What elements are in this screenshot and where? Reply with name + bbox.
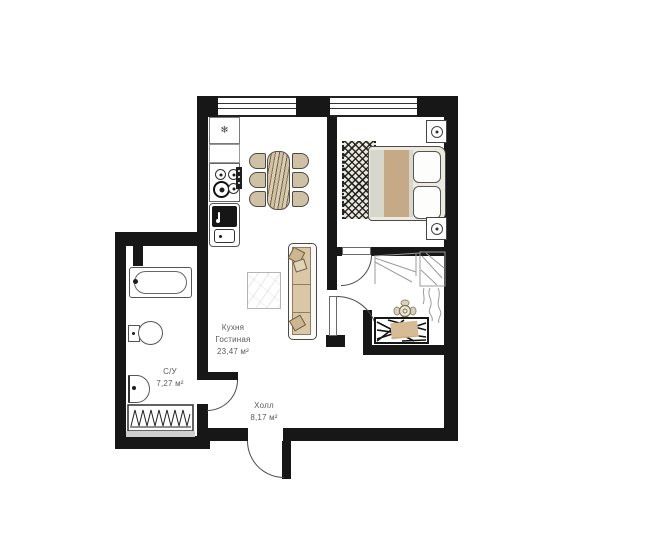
room-name: С/У [140,366,200,378]
kitchen-living-label: Кухня Гостиная 23,47 м² [198,322,268,358]
dining-table [267,151,290,210]
bathroom-shelf [126,431,195,437]
corridor-door-leaf [329,296,337,336]
stove-control-panel [236,167,242,189]
snowflake-icon: ❄ [220,125,228,136]
wall-top-left [197,96,218,117]
room-area: 8,17 м² [232,412,296,424]
bed-pillow [413,186,441,219]
bed-blanket-stripe [384,150,409,217]
bed-pillow [413,151,441,183]
wall-bathroom-vent-stub [133,246,143,266]
nightstand [426,120,447,143]
wall-top-middle [296,96,330,117]
wall-hall-bottom-right [283,428,458,441]
floor-plan: ❄ [0,0,667,537]
stove-burner [215,169,226,180]
bedroom-door-arc [341,255,372,286]
room-area: 7,27 м² [140,378,200,390]
wall-hall-bottom-left [203,428,248,441]
room-area: 23,47 м² [198,346,268,358]
entrance-door-arc [247,441,284,478]
bathroom-label: С/У 7,27 м² [140,366,200,390]
fridge: ❄ [209,117,240,144]
dining-chair [249,191,266,207]
room-name: Кухня [198,322,268,334]
dining-chair [292,172,309,188]
wall-wardrobe-bottom [363,345,458,355]
kitchen-sink-counter [212,206,237,227]
hall-label: Холл 8,17 м² [232,400,296,424]
window-bedroom [330,96,417,117]
living-rug [247,272,281,309]
dining-chair [292,191,309,207]
bathtub-basin [134,271,187,294]
dining-chair [249,172,266,188]
wall-bathroom-left [115,232,126,449]
dining-chair [292,153,309,169]
bench [374,317,429,344]
nightstand [426,217,447,240]
kitchen-sink-bowl [214,229,235,243]
bathtub-faucet [133,279,138,284]
toilet-bowl [138,321,163,345]
bedroom-door-leaf [342,247,371,255]
room-name: Холл [232,400,296,412]
kitchen-cabinet [209,144,240,163]
bathroom-door-leaf [197,372,238,380]
radiator [127,404,194,432]
dining-chair [249,153,266,169]
window-kitchen [218,96,296,117]
room-name: Гостиная [198,334,268,346]
wall-bathroom-top [115,232,208,246]
wall-living-bedroom-divider [327,117,337,290]
wall-bathroom-bottom [115,436,210,449]
